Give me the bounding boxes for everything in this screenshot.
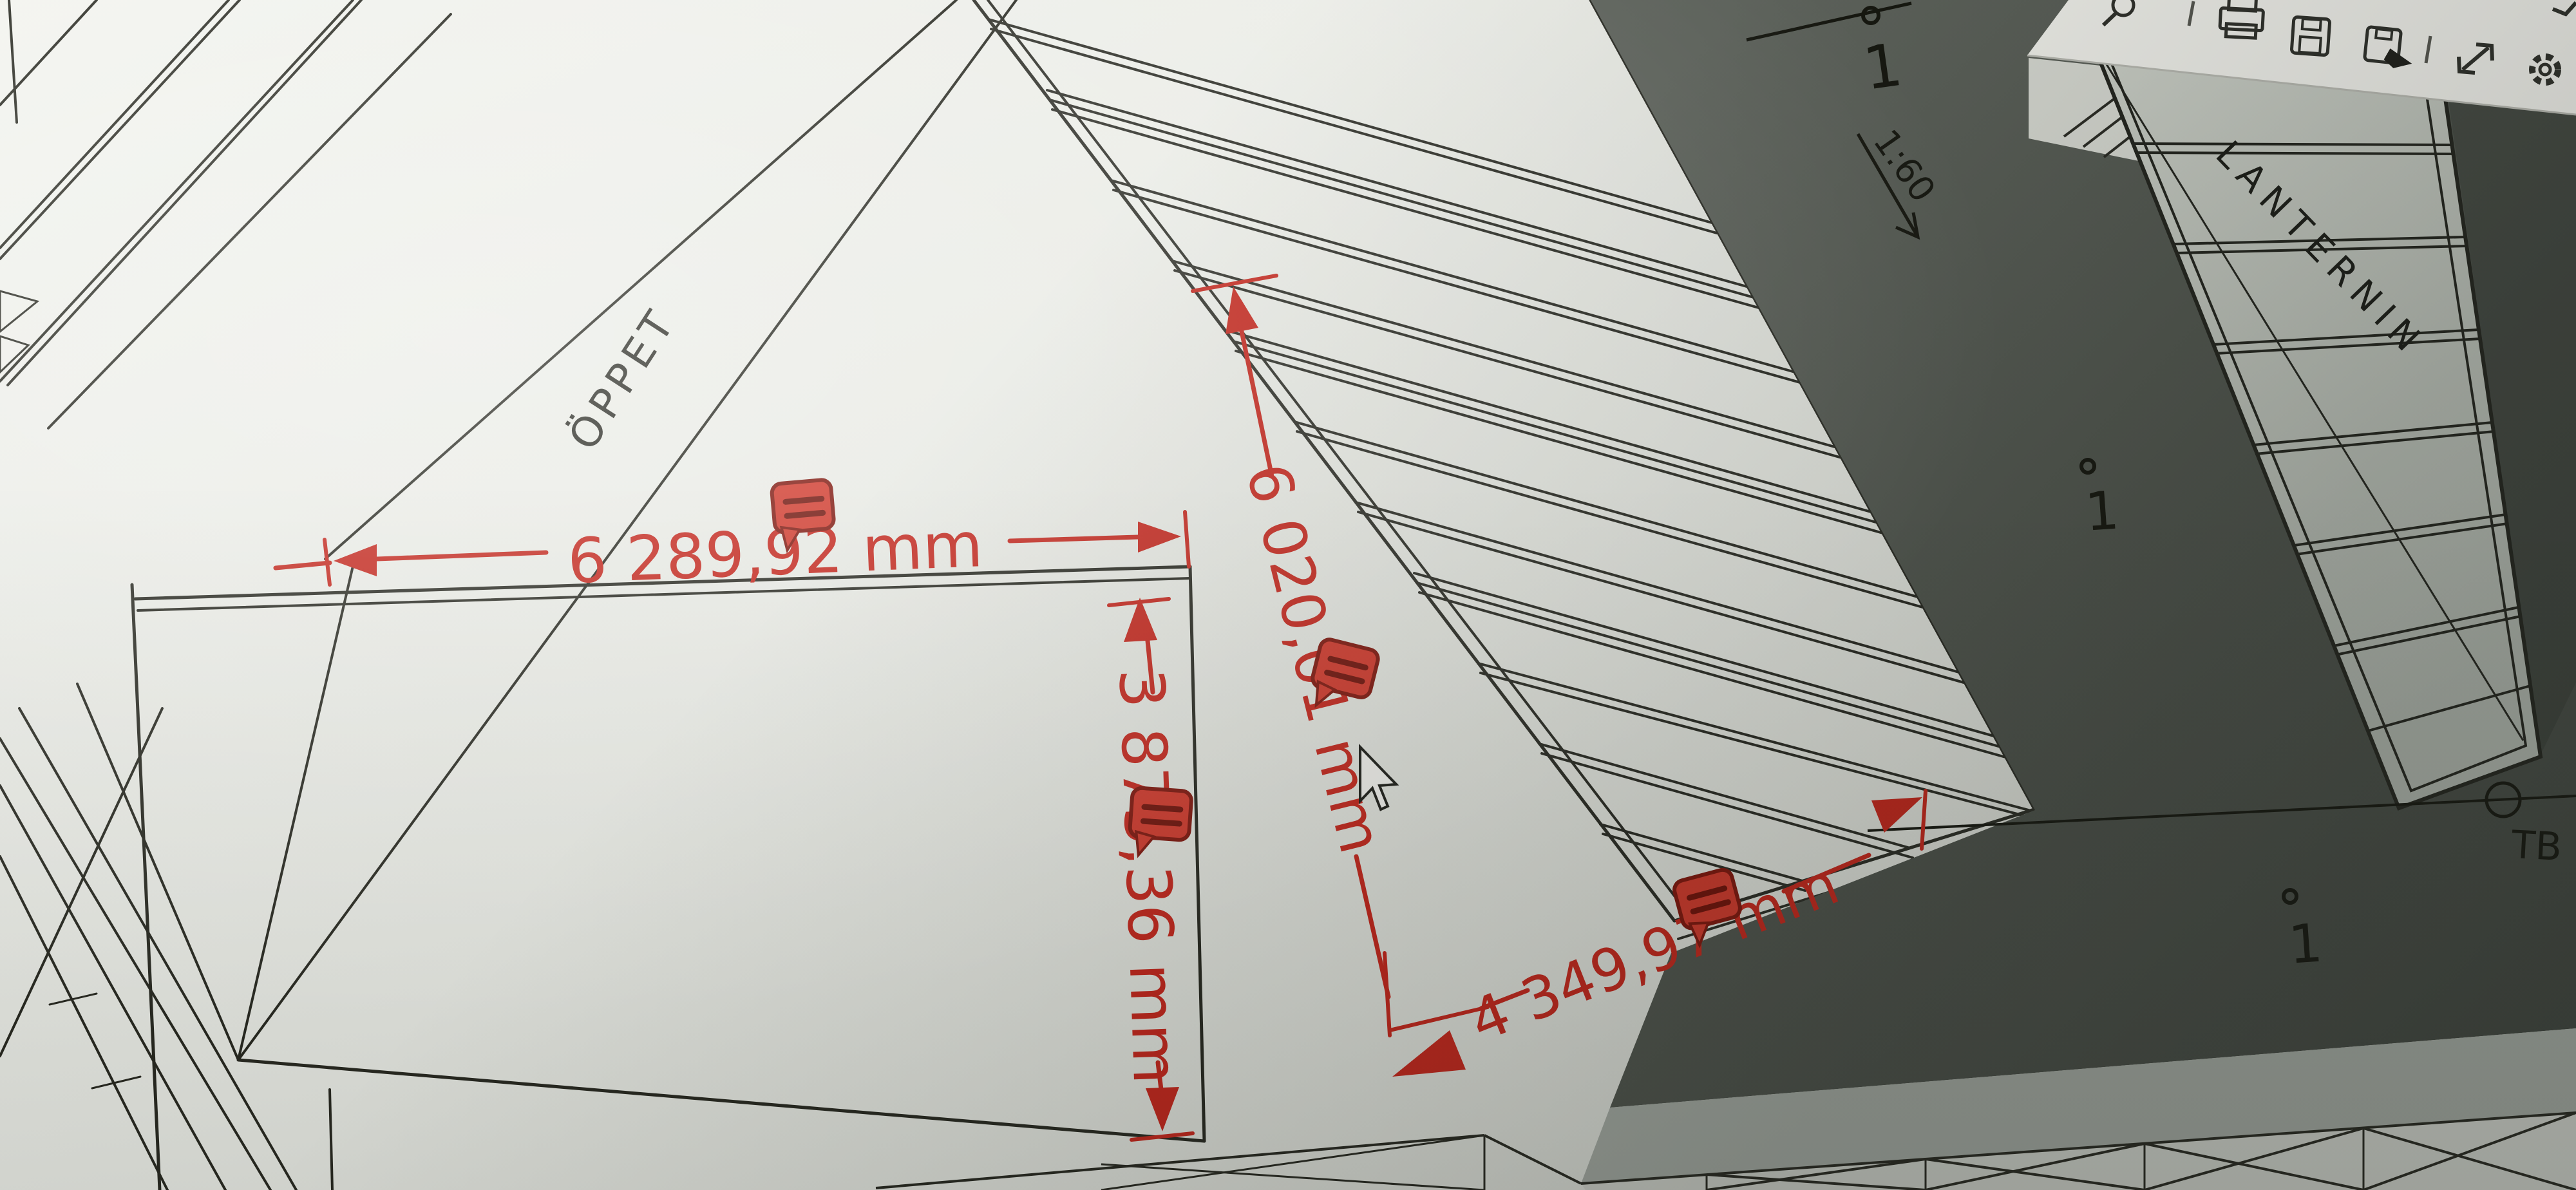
bottom-shadow-overlay xyxy=(0,0,2576,1190)
screen-photo-cad-viewer: ÖPPET xyxy=(0,0,2576,1190)
